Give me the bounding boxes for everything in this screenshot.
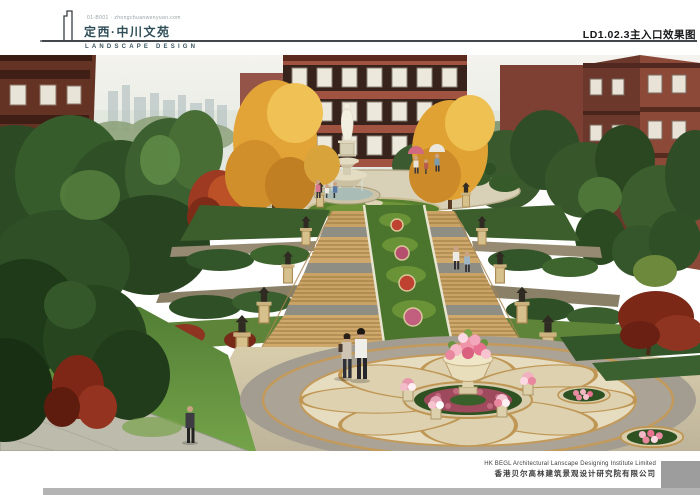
company-block: HK BEGL Architectural Lanscape Designing… — [484, 461, 656, 478]
footer-bar — [43, 488, 700, 495]
footer-logo-block — [661, 461, 700, 488]
sheet-number-label: LD1.02.3主入口效果图 — [583, 27, 696, 42]
company-name-en: HK BEGL Architectural Lanscape Designing… — [484, 461, 656, 469]
rendering-image — [0, 55, 700, 451]
logo-building-icon — [40, 9, 80, 42]
header-micro-text: 01-B001 · zhongchuanwenyuan.com — [87, 15, 181, 21]
landscape-design-label: LANDSCAPE DESIGN — [85, 44, 198, 50]
company-name-cn: 香港贝尔高林建筑景观设计研究院有限公司 — [484, 469, 656, 478]
rendering-scene — [0, 55, 700, 451]
project-title: 定西·中川文苑 — [84, 23, 171, 40]
presentation-board: 01-B001 · zhongchuanwenyuan.com 定西·中川文苑 … — [0, 0, 700, 495]
